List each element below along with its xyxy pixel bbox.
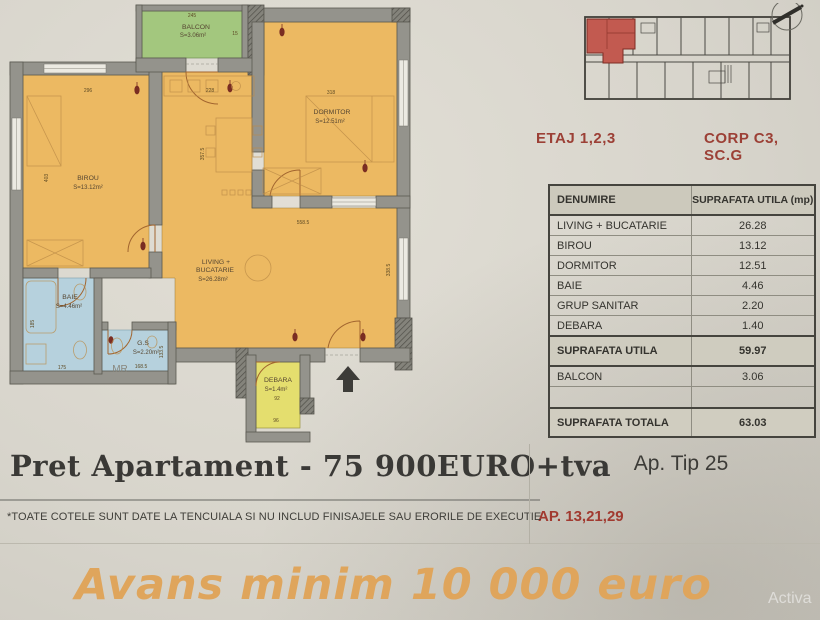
room-birou-shape [23, 75, 149, 268]
label-living-2: BUCATARIE [196, 267, 234, 274]
building-keyplan [575, 3, 815, 109]
flyer-photo: { "keyplan": { "etaj": "ETAJ 1,2,3", "co… [0, 0, 820, 620]
price-underline [0, 499, 540, 501]
table-header-row: DENUMIRE SUPRAFATA UTILA (mp) [549, 185, 815, 215]
label-gs: G.S [137, 340, 149, 347]
dim-15: 15 [232, 31, 238, 37]
dim-175: 175 [58, 365, 67, 371]
row-name: GRUP SANITAR [549, 296, 691, 316]
floor-plan: BALCON S=3.06m² BIROU S=13.12m² DORMITOR… [0, 0, 440, 450]
dim-185: 185 [30, 320, 36, 329]
label-debara: DEBARA [264, 377, 292, 384]
keyplan-highlighted-unit [587, 19, 635, 63]
label-dormitor-area: S=12.51m² [315, 119, 345, 125]
row-name: DORMITOR [549, 256, 691, 276]
dim-96: 96 [273, 418, 279, 424]
row-name: DEBARA [549, 316, 691, 337]
label-birou-area: S=13.12m² [73, 185, 103, 191]
row-value: 2.20 [691, 296, 815, 316]
table-empty-row [549, 387, 815, 409]
dim-92: 92 [274, 396, 280, 402]
label-mr: MR [112, 364, 128, 375]
label-balcon: BALCON [182, 24, 210, 31]
activation-watermark: Activa [768, 590, 812, 608]
table-row: LIVING + BUCATARIE 26.28 [549, 215, 815, 236]
dim-357-5: 357.5 [200, 148, 206, 161]
dim-168-5: 168.5 [135, 364, 148, 370]
label-dormitor: DORMITOR [314, 109, 351, 116]
row-value: 13.12 [691, 236, 815, 256]
row-value [691, 387, 815, 409]
label-birou: BIROU [77, 175, 99, 182]
areas-table: DENUMIRE SUPRAFATA UTILA (mp) LIVING + B… [548, 184, 816, 438]
table-row: DEBARA 1.40 [549, 316, 815, 337]
row-value: 4.46 [691, 276, 815, 296]
dim-403: 403 [44, 174, 50, 183]
disclaimer-text: *TOATE COTELE SUNT DATE LA TENCUIALA SI … [7, 511, 541, 523]
label-baie: BAIE [62, 294, 78, 301]
col-header-suprafata: SUPRAFATA UTILA (mp) [691, 185, 815, 215]
price-title: Pret Apartament - 75 900EURO+tva [10, 449, 611, 483]
row-name: BAIE [549, 276, 691, 296]
label-balcon-area: S=3.06m² [180, 33, 206, 39]
apartment-numbers-label: AP. 13,21,29 [538, 508, 624, 525]
label-baie-area: S=4.46m² [56, 304, 82, 310]
row-value: 12.51 [691, 256, 815, 276]
row-name: LIVING + BUCATARIE [549, 215, 691, 236]
row-name: SUPRAFATA TOTALA [549, 408, 691, 437]
row-value: 59.97 [691, 336, 815, 366]
table-subtotal-row: SUPRAFATA UTILA 59.97 [549, 336, 815, 366]
dim-245: 245 [188, 13, 197, 19]
row-name: SUPRAFATA UTILA [549, 336, 691, 366]
label-living-1: LIVING + [202, 259, 230, 266]
down-payment-banner: Avans minim 10 000 euro [75, 560, 712, 610]
dim-318: 318 [327, 90, 336, 96]
row-value: 1.40 [691, 316, 815, 337]
table-row: DORMITOR 12.51 [549, 256, 815, 276]
table-row: GRUP SANITAR 2.20 [549, 296, 815, 316]
label-debara-area: S=1.4m² [265, 387, 288, 393]
row-value: 3.06 [691, 366, 815, 387]
row-name [549, 387, 691, 409]
corp-label: CORP C3, SC.G [704, 130, 820, 164]
table-total-row: SUPRAFATA TOTALA 63.03 [549, 408, 815, 437]
row-value: 63.03 [691, 408, 815, 437]
dim-296: 296 [84, 88, 93, 94]
table-row: BIROU 13.12 [549, 236, 815, 256]
dim-558-5: 558.5 [297, 220, 310, 226]
row-name: BIROU [549, 236, 691, 256]
table-row: BALCON 3.06 [549, 366, 815, 387]
row-name: BALCON [549, 366, 691, 387]
column-divider [529, 444, 530, 544]
entrance-arrow-icon [336, 366, 360, 392]
dim-133-5: 133.5 [159, 346, 165, 359]
dim-228: 228 [206, 88, 215, 94]
etaj-label: ETAJ 1,2,3 [536, 130, 616, 147]
col-header-denumire: DENUMIRE [549, 185, 691, 215]
section-divider [0, 543, 820, 544]
row-value: 26.28 [691, 215, 815, 236]
label-living-area: S=26.28m² [198, 277, 228, 283]
dim-338-5: 338.5 [386, 264, 392, 277]
table-row: BAIE 4.46 [549, 276, 815, 296]
label-gs-area: S=2.20m² [133, 350, 159, 356]
